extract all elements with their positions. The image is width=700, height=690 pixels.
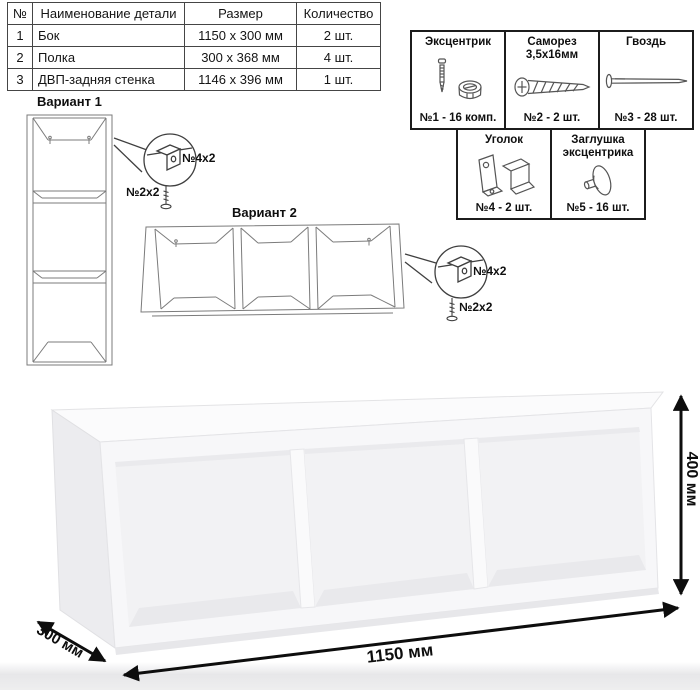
header-num: № [8, 3, 33, 25]
screw-glyph [161, 186, 171, 209]
cell-num: 1 [8, 25, 33, 47]
hardware-title: Саморез [526, 36, 578, 49]
hardware-title: Гвоздь [626, 36, 666, 49]
cell-qty: 1 шт. [297, 69, 381, 91]
variant1-screw-label: №2х2 [126, 185, 159, 199]
variant2-bracket-label: №4х2 [473, 264, 506, 278]
hardware-count: №2 - 2 шт. [524, 112, 580, 124]
hardware-count: №5 - 16 шт. [567, 202, 630, 214]
cell-num: 2 [8, 47, 33, 69]
hardware-title: Эксцентрик [425, 36, 491, 49]
cell-name: Полка [33, 47, 185, 69]
hardware-count: №3 - 28 шт. [615, 112, 678, 124]
hardware-box-row1: Эксцентрик №1 - 16 комп. [410, 30, 694, 130]
dimension-height-label: 400 мм [682, 419, 700, 539]
cam-bolt-icon [423, 57, 493, 105]
variant2-screw-label: №2х2 [459, 300, 492, 314]
hardware-cell-screw: Саморез3,5х16мм №2 - 2 шт. [504, 30, 600, 130]
hardware-count: №4 - 2 шт. [476, 202, 532, 214]
table-row: 2 Полка 300 x 368 мм 4 шт. [8, 47, 381, 69]
hardware-cell-cap: Заглушкаэксцентрика №5 - 16 шт. [550, 128, 646, 220]
assembly-instruction-sheet: № Наименование детали Размер Количество … [0, 0, 700, 690]
hardware-count: №1 - 16 комп. [420, 112, 497, 124]
parts-table: № Наименование детали Размер Количество … [7, 2, 381, 91]
hardware-cell-nail: Гвоздь №3 - 28 шт. [598, 30, 694, 130]
cell-qty: 4 шт. [297, 47, 381, 69]
cap-icon [576, 160, 620, 202]
cell-size: 1150 x 300 мм [185, 25, 297, 47]
hardware-title: Заглушка [563, 134, 634, 147]
header-name: Наименование детали [33, 3, 185, 25]
cell-size: 300 x 368 мм [185, 47, 297, 69]
shelf-3d-drawing [0, 380, 700, 690]
header-qty: Количество [297, 3, 381, 25]
variant1-bracket-label: №4х2 [182, 151, 215, 165]
variant2-drawing [138, 218, 503, 330]
corner-bracket-icon [471, 150, 537, 200]
screw-glyph [447, 298, 457, 321]
hardware-subtitle: эксцентрика [563, 147, 634, 160]
hardware-cell-eccentric: Эксцентрик №1 - 16 комп. [410, 30, 506, 130]
nail-icon [603, 70, 689, 92]
table-row: 1 Бок 1150 x 300 мм 2 шт. [8, 25, 381, 47]
hardware-title: Уголок [485, 134, 523, 147]
cell-name: Бок [33, 25, 185, 47]
hardware-subtitle: 3,5х16мм [526, 49, 578, 62]
hardware-box-row2: Уголок №4 - 2 шт. Заглушкаэксцентрика [456, 128, 646, 220]
screw-icon [511, 70, 593, 104]
table-header-row: № Наименование детали Размер Количество [8, 3, 381, 25]
hardware-cell-bracket: Уголок №4 - 2 шт. [456, 128, 552, 220]
cell-qty: 2 шт. [297, 25, 381, 47]
header-size: Размер [185, 3, 297, 25]
